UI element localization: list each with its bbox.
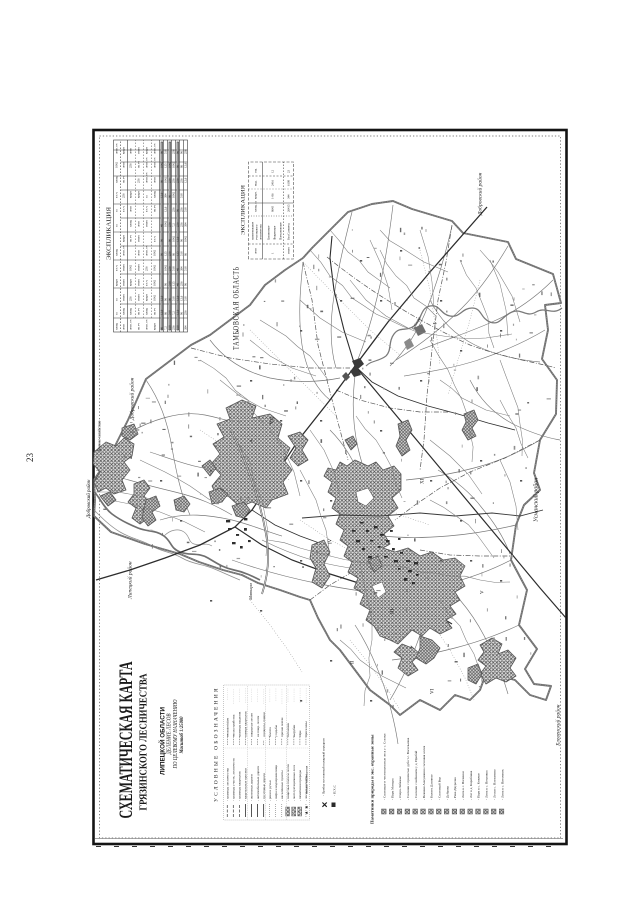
svg-text:кварт: кварт — [145, 146, 149, 154]
svg-text:256: 256 — [129, 163, 133, 168]
svg-text:- защитные полосы лесов: - защитные полосы лесов — [286, 764, 290, 801]
svg-text:- грунтовые дороги: - грунтовые дороги — [262, 773, 266, 801]
svg-text:1042: 1042 — [184, 236, 188, 243]
svg-text:Зеленое хозяйство: Зеленое хозяйство — [97, 421, 102, 452]
svg-text:площ. га: площ. га — [254, 200, 258, 212]
svg-text:256: 256 — [137, 178, 141, 183]
svg-text:лесн. уч: лесн. уч — [145, 245, 149, 256]
svg-text:256: 256 — [129, 296, 133, 301]
svg-text:кварт: кварт — [129, 278, 133, 286]
svg-text:прогалины: прогалины — [304, 721, 308, 737]
svg-text:кварт: кварт — [129, 190, 133, 198]
svg-text:по уч: по уч — [129, 235, 133, 242]
svg-text:- Сосняки с вейником у д. Приб: - Сосняки с вейником у д. Прибой — [414, 750, 418, 800]
svg-text:- Болото Длинное: - Болото Длинное — [430, 774, 434, 800]
svg-text:лесн: лесн — [122, 162, 126, 168]
svg-text:12: 12 — [271, 170, 275, 174]
svg-text:прочие земли: прочие земли — [280, 717, 284, 737]
svg-text:кварт.: кварт. — [254, 191, 258, 199]
svg-text:итого: итого — [287, 246, 291, 254]
svg-text:площ: площ — [129, 307, 133, 315]
svg-text:- Парк в с. Княжое: - Парк в с. Княжое — [477, 773, 481, 800]
svg-text:СХЕМАТИЧЕСКАЯ КАРТА: СХЕМАТИЧЕСКАЯ КАРТА — [116, 661, 137, 818]
svg-text:- Река Двуречка: - Река Двуречка — [453, 777, 457, 800]
svg-text:- границы кварталов: - границы кварталов — [238, 771, 242, 801]
svg-text:гари: гари — [298, 730, 302, 737]
svg-text:кварт: кварт — [145, 293, 149, 301]
svg-text:518: 518 — [176, 325, 180, 330]
svg-text:итого: итого — [137, 263, 141, 271]
svg-text:усадьбы: усадьбы — [274, 724, 278, 737]
svg-text:итого: итого — [122, 278, 126, 286]
svg-text:итого: итого — [137, 293, 141, 301]
svg-text:- Лески с. Плеханово: - Лески с. Плеханово — [492, 769, 496, 800]
svg-text:Масштаб 1:25000: Масштаб 1:25000 — [178, 716, 185, 754]
svg-text:1042: 1042 — [153, 280, 157, 287]
svg-text:стр.: стр. — [254, 168, 258, 173]
svg-text:ТАМБОВСКАЯ ОБЛАСТЬ: ТАМБОВСКАЯ ОБЛАСТЬ — [232, 266, 241, 350]
svg-text:- Лог в д. Коробовка: - Лог в д. Коробовка — [469, 770, 473, 800]
svg-text:Бол.Самовец: Бол.Самовец — [287, 223, 291, 240]
svg-text:в т.ч.: в т.ч. — [115, 191, 119, 198]
svg-text:V: V — [481, 590, 486, 594]
svg-text:лесн. уч: лесн. уч — [115, 143, 119, 154]
svg-text:- Прибор постоянный пожарный а: - Прибор постоянный пожарный аэродром — [322, 738, 326, 796]
svg-text:лесн. уч: лесн. уч — [145, 157, 149, 168]
svg-text:VI: VI — [431, 688, 436, 694]
svg-text:Добровский район: Добровский район — [86, 479, 92, 519]
svg-text:лесн. уч: лесн. уч — [145, 172, 149, 183]
svg-text:лесн: лесн — [129, 148, 133, 154]
svg-text:кварт: кварт — [153, 322, 157, 330]
svg-text:Усманский район: Усманский район — [533, 478, 540, 522]
svg-text:XI: XI — [421, 478, 426, 484]
svg-text:Грязинское: Грязинское — [267, 225, 271, 240]
svg-text:Хлевенский район: Хлевенский район — [555, 704, 562, 747]
svg-text:лесн. уч: лесн. уч — [122, 245, 126, 256]
svg-text:лесн. уч: лесн. уч — [145, 319, 149, 330]
svg-text:256: 256 — [122, 193, 126, 198]
svg-text:лесн: лесн — [129, 206, 133, 212]
svg-text:лесоустройства: лесоустройства — [232, 714, 236, 737]
svg-text:ЭКСПЛИКАЦИЯ: ЭКСПЛИКАЦИЯ — [241, 185, 247, 235]
svg-text:лесн: лесн — [153, 177, 157, 183]
svg-text:лесн: лесн — [137, 221, 141, 227]
svg-text:в т.ч.: в т.ч. — [153, 235, 157, 242]
svg-text:Фащевское: Фащевское — [273, 225, 277, 240]
svg-text:итого: итого — [145, 219, 149, 227]
svg-text:- Озеро Лебяжье: - Озеро Лебяжье — [398, 776, 402, 800]
svg-text:518: 518 — [184, 296, 188, 301]
svg-text:в т.ч.: в т.ч. — [145, 205, 149, 212]
svg-text:площ: площ — [115, 322, 119, 330]
svg-text:питомник: питомник — [286, 723, 290, 737]
svg-text:518: 518 — [184, 266, 188, 271]
svg-text:итого: итого — [122, 263, 126, 271]
svg-text:6108: 6108 — [287, 180, 291, 187]
svg-text:1042: 1042 — [153, 250, 157, 257]
svg-text:не покр. лесом: не покр. лесом — [256, 715, 260, 737]
svg-text:- Липа в с. Починки: - Липа в с. Починки — [461, 771, 465, 800]
svg-text:по уч: по уч — [153, 308, 157, 315]
svg-text:1042: 1042 — [172, 192, 176, 199]
svg-text:Липецкий район: Липецкий район — [127, 561, 134, 600]
svg-text:2416: 2416 — [271, 180, 275, 187]
svg-text:1042: 1042 — [115, 162, 119, 169]
svg-text:- Липа в с. Питомник: - Липа в с. Питомник — [500, 769, 504, 800]
svg-text:по уч: по уч — [137, 323, 141, 330]
svg-text:Памятники природы и экс. охран: Памятники природы и экс. охранные зоны — [370, 734, 375, 824]
svg-text:лесн. уч: лесн. уч — [129, 319, 133, 330]
svg-text:болота: болота — [268, 727, 272, 737]
svg-text:номера кварталов: номера кварталов — [244, 711, 248, 737]
svg-text:кварт: кварт — [115, 278, 119, 286]
svg-text:- железные дороги: - железные дороги — [250, 774, 254, 801]
svg-text:лесн. уч: лесн. уч — [153, 157, 157, 168]
svg-text:по уч: по уч — [122, 176, 126, 183]
svg-text:II: II — [351, 660, 356, 664]
svg-text:лесн: лесн — [254, 248, 258, 254]
svg-text:вырубки: вырубки — [292, 724, 296, 737]
svg-text:границы выделов: границы выделов — [238, 711, 242, 737]
svg-text:лесн. уч: лесн. уч — [153, 143, 157, 154]
svg-text:- Сосновый Бор: - Сосновый Бор — [437, 777, 441, 800]
svg-text:итого: итого — [137, 278, 141, 286]
svg-text:VII: VII — [271, 417, 276, 424]
svg-text:8645: 8645 — [271, 206, 275, 213]
svg-text:Матыра: Матыра — [248, 583, 253, 601]
svg-text:площ: площ — [145, 307, 149, 315]
svg-text:площ: площ — [129, 219, 133, 227]
svg-text:344: 344 — [287, 194, 291, 199]
svg-text:итого: итого — [122, 293, 126, 301]
svg-text:ЭКСПЛИКАЦИЯ: ЭКСПЛИКАЦИЯ — [106, 207, 113, 260]
svg-text:23: 23 — [287, 170, 291, 174]
svg-text:IV: IV — [329, 538, 334, 544]
svg-text:в т.ч.: в т.ч. — [115, 264, 119, 271]
svg-text:покрытые лесом: покрытые лесом — [250, 712, 254, 737]
svg-text:УСЛОВНЫЕ ОБОЗНАЧЕНИЯ: УСЛОВНЫЕ ОБОЗНАЧЕНИЯ — [214, 686, 220, 802]
svg-text:ЛИПЕЦКОЙ ОБЛАСТИ: ЛИПЕЦКОЙ ОБЛАСТИ — [158, 707, 167, 775]
svg-text:- Парк Матыра: - Парк Матыра — [390, 778, 394, 800]
svg-text:Плехановское: Плехановское — [279, 222, 283, 240]
svg-text:256: 256 — [184, 310, 188, 315]
svg-text:по уч: по уч — [153, 205, 157, 212]
svg-text:итого: итого — [137, 146, 141, 154]
svg-text:- П.Х.С: - П.Х.С — [333, 784, 337, 796]
svg-text:518: 518 — [184, 207, 188, 212]
svg-text:96: 96 — [160, 239, 164, 243]
svg-text:1042: 1042 — [153, 295, 157, 302]
svg-text:- границы участк. лесничеств: - границы участк. лесничеств — [232, 758, 236, 801]
svg-text:- границы лесничества: - границы лесничества — [226, 768, 230, 801]
svg-text:Добровский район: Добровский район — [129, 377, 136, 421]
svg-text:итого: итого — [137, 234, 141, 242]
svg-text:- Дубрава: - Дубрава — [445, 786, 449, 800]
svg-text:III: III — [391, 609, 396, 614]
svg-text:- автомобильные дороги: - автомобильные дороги — [256, 766, 260, 801]
svg-text:518: 518 — [180, 193, 184, 198]
svg-text:- эксплуатационные леса: - эксплуатационные леса — [292, 764, 296, 801]
svg-text:- Сосновые и чистополосные лес: - Сосновые и чистополосные леса у с. Ссе… — [383, 733, 387, 800]
svg-text:- реки и ручьи: - реки и ручьи — [268, 780, 272, 801]
svg-text:в т.ч.: в т.ч. — [122, 205, 126, 212]
svg-text:- населённые пункты: - населённые пункты — [280, 770, 284, 801]
svg-text:площ: площ — [115, 175, 119, 183]
svg-text:- Липа в с. Петровка: - Липа в с. Петровка — [485, 770, 489, 800]
svg-text:- памятники природы: - памятники природы — [298, 769, 302, 801]
svg-text:- Вековая Аннушкина сосновая а: - Вековая Аннушкина сосновая аллея — [422, 745, 426, 800]
svg-text:площ: площ — [115, 248, 119, 256]
svg-text:ГРЯЗИНСКОГО ЛЕСНИЧЕСТВА: ГРЯЗИНСКОГО ЛЕСНИЧЕСТВА — [138, 673, 150, 810]
svg-text:в т.ч.: в т.ч. — [145, 279, 149, 286]
svg-text:- вышки наблюдения: - вышки наблюдения — [305, 765, 309, 796]
svg-text:по materialам: по materialам — [226, 717, 230, 737]
svg-text:Добровский район: Добровский район — [477, 172, 484, 216]
svg-text:- Сосняки с примесью дуба т.с.: - Сосняки с примесью дуба т.с. Васильевк… — [406, 737, 410, 800]
svg-text:кварт: кварт — [122, 146, 126, 154]
svg-text:▲ ▲: ▲ ▲ — [304, 805, 309, 815]
svg-text:384: 384 — [184, 222, 188, 227]
svg-text:- озёра и водохранилища: - озёра и водохранилища — [274, 765, 278, 801]
svg-text:✕: ✕ — [321, 801, 330, 808]
svg-text:по уч: по уч — [137, 308, 141, 315]
svg-text:лесн: лесн — [122, 324, 126, 330]
svg-text:по уч: по уч — [137, 161, 141, 168]
svg-text:256: 256 — [145, 266, 149, 271]
svg-text:выд.: выд. — [254, 180, 258, 186]
svg-text:ДЕЛЕНИЕ ЛЕСОВ: ДЕЛЕНИЕ ЛЕСОВ — [167, 713, 173, 755]
svg-text:кварт: кварт — [137, 190, 141, 198]
svg-text:86: 86 — [184, 253, 188, 257]
svg-text:кварт: кварт — [122, 234, 126, 242]
svg-text:лесничества: лесничества — [259, 224, 263, 240]
svg-text:площ: площ — [153, 190, 157, 198]
svg-text:- квартальные просеки: - квартальные просеки — [244, 768, 248, 801]
svg-text:площ: площ — [122, 307, 126, 315]
svg-text:26415: 26415 — [287, 204, 291, 212]
svg-text:лесн: лесн — [137, 250, 141, 256]
svg-text:1042: 1042 — [153, 265, 157, 272]
svg-text:1-86: 1-86 — [271, 193, 275, 199]
svg-text:384: 384 — [184, 325, 188, 330]
svg-text:518: 518 — [164, 149, 168, 154]
svg-text:1042: 1042 — [129, 265, 133, 272]
svg-text:96: 96 — [184, 283, 188, 287]
svg-text:256: 256 — [184, 149, 188, 154]
svg-text:23: 23 — [25, 453, 35, 463]
